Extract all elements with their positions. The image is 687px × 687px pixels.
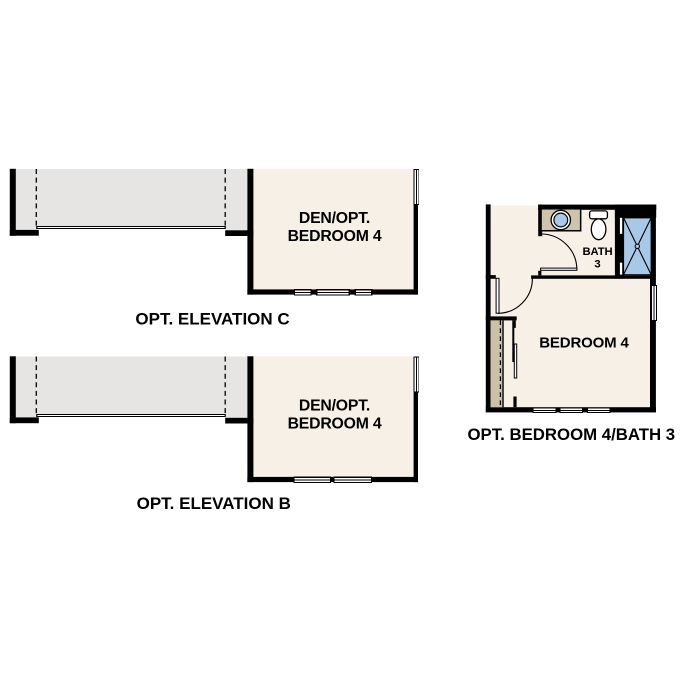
svg-text:3: 3 — [594, 259, 600, 271]
svg-text:DEN/OPT.: DEN/OPT. — [299, 398, 370, 415]
svg-text:OPT. BEDROOM 4/BATH 3: OPT. BEDROOM 4/BATH 3 — [468, 425, 676, 444]
svg-text:OPT. ELEVATION B: OPT. ELEVATION B — [137, 494, 291, 513]
svg-text:OPT. ELEVATION C: OPT. ELEVATION C — [135, 309, 289, 328]
svg-text:BATH: BATH — [583, 246, 613, 258]
svg-text:BEDROOM 4: BEDROOM 4 — [288, 228, 382, 245]
svg-text:BEDROOM 4: BEDROOM 4 — [288, 416, 382, 433]
svg-text:BEDROOM 4: BEDROOM 4 — [539, 334, 629, 351]
svg-text:DEN/OPT.: DEN/OPT. — [299, 210, 370, 227]
